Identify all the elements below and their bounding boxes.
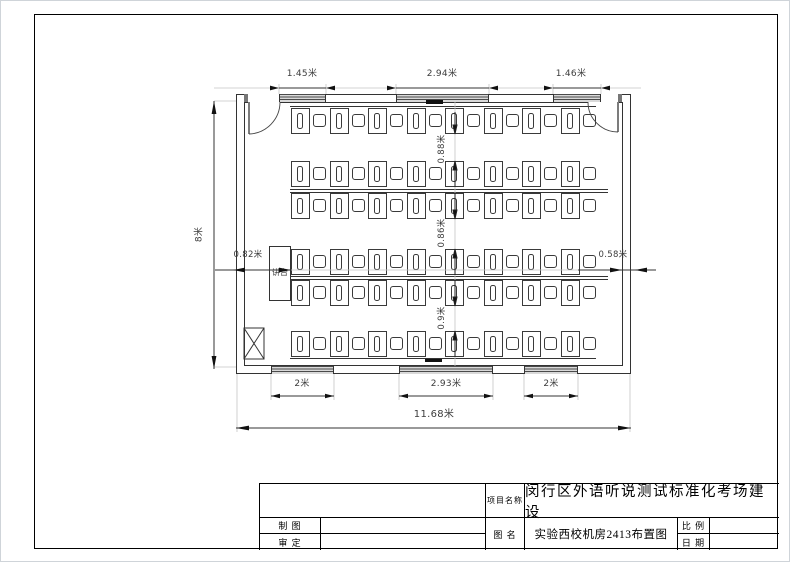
approved-by-value: [320, 533, 485, 550]
dim-row-gap-2: 0.86米: [435, 213, 447, 253]
approved-by-label: 审 定: [260, 533, 320, 550]
drawing-name-label: 图 名: [485, 517, 524, 550]
drawing-sheet: 讲台: [0, 0, 790, 562]
dim-top-2: 2.94米: [422, 66, 462, 79]
linework-overlay: [1, 1, 790, 562]
dim-row-gap-3: 0.9米: [435, 298, 447, 338]
dim-bottom-3: 2米: [531, 376, 571, 389]
cabinet-x-icon: [244, 328, 264, 359]
door-right-icon: [588, 102, 618, 132]
dim-top-3: 1.46米: [551, 66, 591, 79]
drafted-by-value: [320, 517, 485, 533]
title-block: 项目名称 闵行区外语听说测试标准化考场建设 制 图 审 定 图 名 实验西校机房…: [259, 483, 779, 550]
scale-value: [709, 517, 779, 533]
dim-total-width: 11.68米: [409, 405, 459, 420]
drawing-name-value: 实验西校机房2413布置图: [524, 517, 677, 550]
dim-bottom-1: 2米: [282, 376, 322, 389]
dim-bottom-2: 2.93米: [426, 376, 466, 389]
drafted-by-label: 制 图: [260, 517, 320, 533]
title-block-blank-cell: [260, 484, 485, 517]
dim-top-1: 1.45米: [282, 66, 322, 79]
door-left-icon: [249, 102, 280, 134]
dim-row-gap-1: 0.88米: [435, 129, 447, 169]
date-label: 日 期: [677, 533, 709, 550]
date-value: [709, 533, 779, 550]
dim-room-height: 8米: [192, 215, 205, 255]
scale-label: 比 例: [677, 517, 709, 533]
project-name-value: 闵行区外语听说测试标准化考场建设: [524, 484, 779, 517]
project-name-label: 项目名称: [485, 484, 524, 517]
dim-right-gap: 0.58米: [595, 248, 631, 260]
dim-podium-gap: 0.82米: [231, 248, 265, 260]
